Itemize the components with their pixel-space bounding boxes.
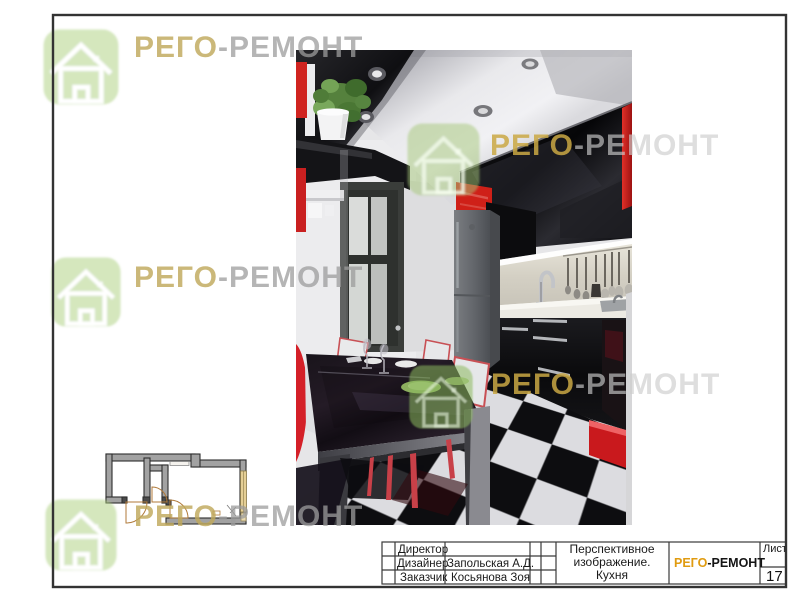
svg-text:Директор: Директор (398, 544, 448, 556)
svg-text:Заказчик: Заказчик (400, 572, 448, 584)
svg-text:РЕГО-РЕМОНТ: РЕГО-РЕМОНТ (134, 261, 363, 294)
svg-text:17: 17 (766, 568, 783, 585)
svg-text:изображение.: изображение. (573, 555, 650, 569)
svg-text:Перспективное: Перспективное (569, 542, 654, 556)
svg-text:РЕГО-РЕМОНТ: РЕГО-РЕМОНТ (134, 31, 363, 64)
svg-text:РЕГО-РЕМОНТ: РЕГО-РЕМОНТ (134, 500, 363, 533)
svg-text:Лист: Лист (763, 543, 787, 555)
svg-text:Кухня: Кухня (596, 568, 628, 582)
svg-text:Косьянова Зоя: Косьянова Зоя (451, 572, 530, 584)
svg-text:РЕГО-РЕМОНТ: РЕГО-РЕМОНТ (490, 129, 719, 162)
svg-text:РЕГО-РЕМОНТ: РЕГО-РЕМОНТ (491, 368, 720, 401)
svg-text:Запольская А.Д.: Запольская А.Д. (447, 558, 534, 570)
svg-text:РЕГО-РЕМОНТ: РЕГО-РЕМОНТ (674, 556, 765, 570)
svg-text:Дизайнер: Дизайнер (397, 558, 448, 570)
